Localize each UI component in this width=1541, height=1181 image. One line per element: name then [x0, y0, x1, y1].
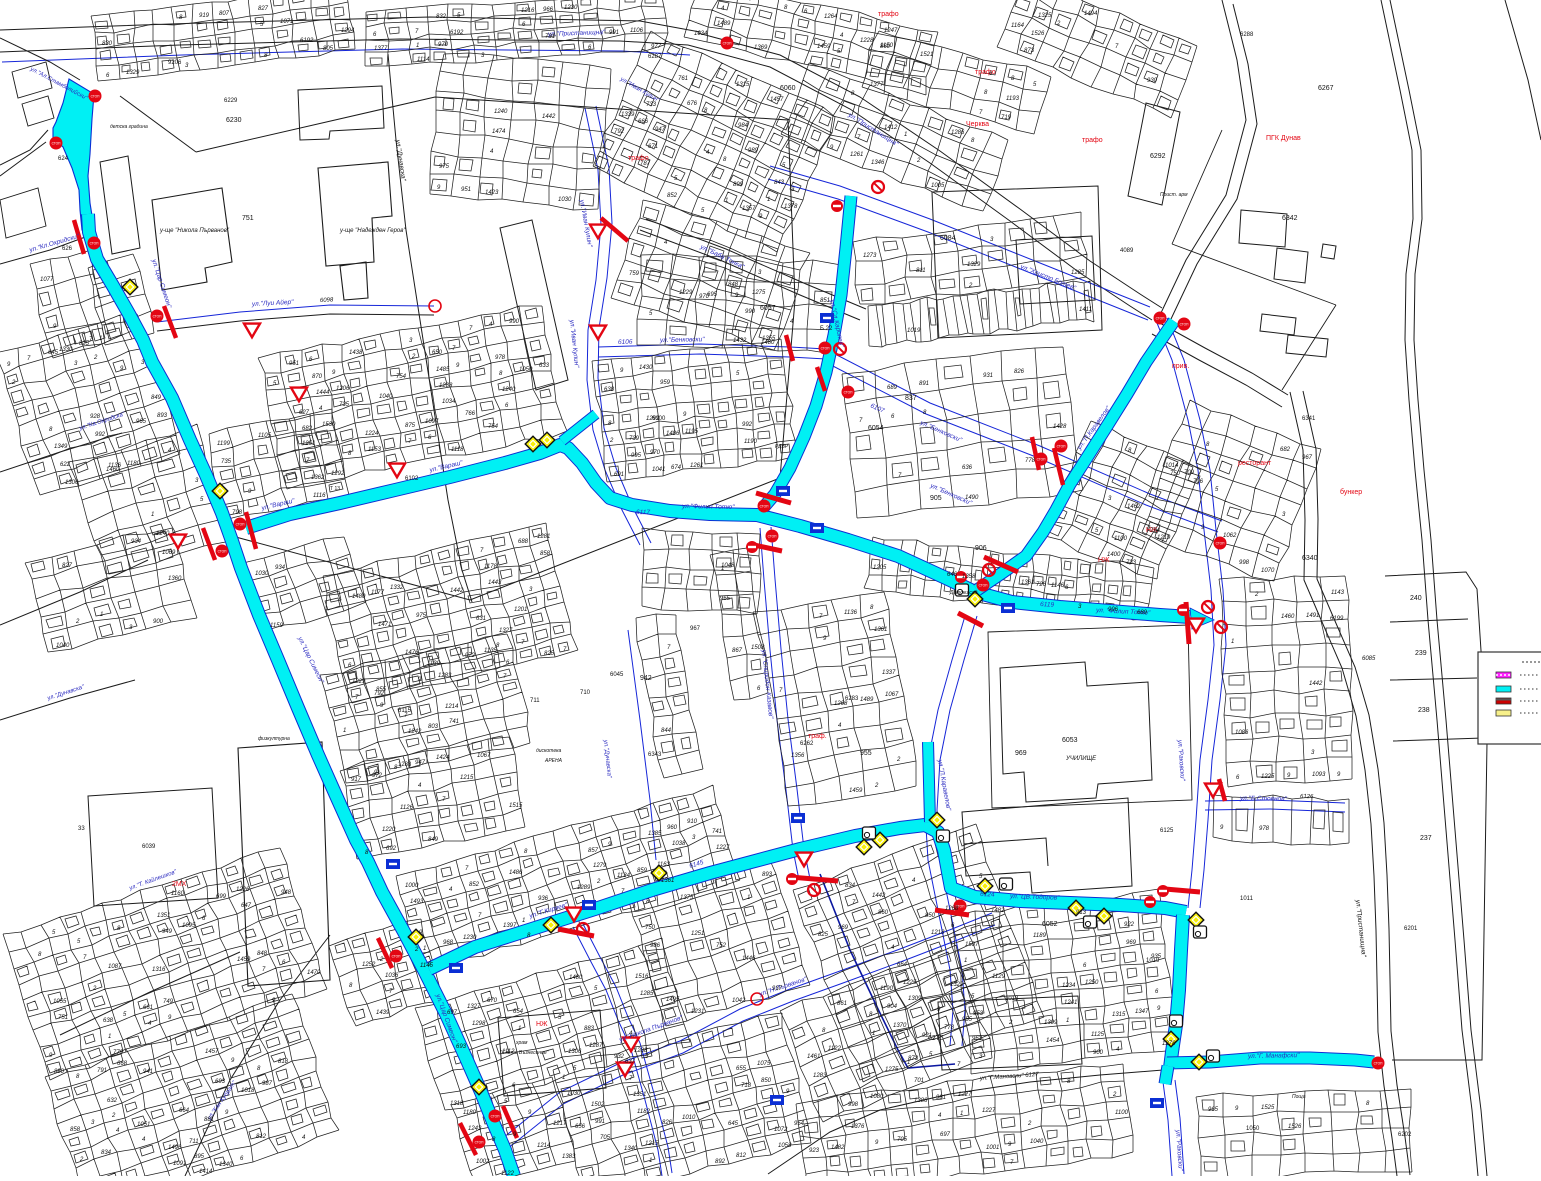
svg-text:693: 693 — [456, 1044, 467, 1050]
svg-text:1190: 1190 — [744, 439, 758, 445]
svg-text:1072: 1072 — [774, 1127, 788, 1133]
svg-text:670: 670 — [487, 998, 498, 1004]
svg-text:1376: 1376 — [851, 1124, 865, 1130]
svg-text:1019: 1019 — [907, 328, 921, 334]
svg-text:1457: 1457 — [205, 1049, 219, 1055]
svg-text:6106: 6106 — [618, 339, 633, 346]
svg-text:931: 931 — [983, 373, 993, 379]
svg-text:692: 692 — [386, 846, 397, 852]
svg-text:1285: 1285 — [1071, 270, 1085, 276]
svg-text:33: 33 — [78, 826, 85, 832]
svg-text:794: 794 — [1150, 528, 1161, 534]
svg-text:1424: 1424 — [436, 755, 450, 761]
svg-text:967: 967 — [1302, 455, 1313, 461]
svg-text:1214: 1214 — [445, 704, 459, 710]
svg-text:1397: 1397 — [503, 923, 517, 929]
svg-text:705: 705 — [897, 1137, 908, 1143]
svg-text:812: 812 — [736, 1153, 747, 1159]
svg-text:2: 2 — [1008, 1020, 1013, 1026]
svg-text:1457: 1457 — [770, 97, 784, 103]
svg-text:955: 955 — [962, 1017, 973, 1023]
svg-text:666: 666 — [638, 119, 649, 125]
svg-text:1250: 1250 — [1085, 980, 1099, 986]
svg-text:1482: 1482 — [831, 1145, 845, 1151]
svg-text:1306: 1306 — [65, 480, 79, 486]
svg-text:1240: 1240 — [502, 387, 516, 393]
svg-text:1496: 1496 — [168, 1145, 182, 1151]
svg-text:2: 2 — [93, 355, 98, 361]
svg-text:645: 645 — [728, 1121, 739, 1127]
svg-text:861: 861 — [837, 1001, 847, 1007]
svg-text:1325: 1325 — [1038, 13, 1052, 19]
svg-text:1067: 1067 — [477, 753, 491, 759]
svg-text:6060: 6060 — [780, 85, 796, 92]
svg-text:844: 844 — [661, 728, 672, 734]
svg-text:6054: 6054 — [868, 425, 884, 432]
svg-text:825: 825 — [544, 651, 555, 657]
svg-text:726: 726 — [1036, 582, 1047, 588]
svg-text:2: 2 — [874, 783, 879, 789]
svg-text:921: 921 — [922, 1033, 932, 1039]
svg-text:1383: 1383 — [562, 1154, 576, 1160]
svg-text:682: 682 — [1280, 447, 1291, 453]
svg-text:992: 992 — [95, 432, 106, 438]
svg-text:741: 741 — [712, 829, 722, 835]
svg-text:1100: 1100 — [1114, 536, 1128, 542]
svg-text:1091: 1091 — [173, 1161, 186, 1167]
svg-text:1234: 1234 — [1062, 983, 1076, 989]
svg-text:1164: 1164 — [1011, 23, 1025, 29]
svg-text:906: 906 — [975, 545, 987, 552]
svg-text:706: 706 — [1193, 479, 1204, 485]
svg-text:1283: 1283 — [813, 1073, 827, 1079]
svg-text:у-ще "Никола Първанов": у-ще "Никола Първанов" — [159, 228, 230, 234]
svg-text:624: 624 — [58, 156, 69, 162]
svg-text:705: 705 — [600, 1135, 611, 1141]
svg-text:699: 699 — [216, 894, 227, 900]
svg-text:1400: 1400 — [1107, 552, 1121, 558]
svg-text:1526: 1526 — [1031, 31, 1045, 37]
svg-text:965: 965 — [136, 419, 147, 425]
svg-text:1327: 1327 — [467, 1004, 481, 1010]
svg-text:1126: 1126 — [400, 805, 414, 811]
svg-text:1442: 1442 — [872, 893, 886, 899]
svg-text:1264: 1264 — [824, 14, 838, 20]
svg-text:1231: 1231 — [691, 1009, 704, 1015]
svg-text:998: 998 — [1239, 560, 1250, 566]
svg-text:1180: 1180 — [463, 1110, 477, 1116]
svg-text:1378: 1378 — [784, 204, 798, 210]
svg-text:2: 2 — [916, 158, 921, 164]
svg-text:240: 240 — [1410, 595, 1422, 602]
svg-text:6125: 6125 — [1160, 828, 1174, 834]
svg-text:2: 2 — [1112, 1092, 1117, 1098]
svg-text:637: 637 — [625, 1059, 636, 1065]
svg-text:1018: 1018 — [241, 1088, 255, 1094]
svg-text:1: 1 — [108, 1034, 111, 1040]
svg-text:1327: 1327 — [499, 628, 513, 634]
svg-text:843: 843 — [774, 180, 785, 186]
svg-text:1229: 1229 — [679, 290, 693, 296]
svg-text:934: 934 — [131, 539, 142, 545]
svg-text:2: 2 — [609, 438, 614, 444]
svg-text:664: 664 — [897, 962, 908, 968]
svg-text:2: 2 — [111, 1113, 116, 1119]
svg-text:1329: 1329 — [967, 262, 981, 268]
svg-text:941: 941 — [143, 1069, 153, 1075]
svg-text:1515: 1515 — [509, 803, 523, 809]
svg-text:919: 919 — [199, 13, 210, 19]
svg-text:СТОП: СТОП — [1037, 458, 1046, 462]
svg-text:656: 656 — [575, 1124, 586, 1130]
svg-text:СТОП: СТОП — [392, 955, 401, 959]
svg-text:1247: 1247 — [884, 28, 898, 34]
svg-text:834: 834 — [845, 883, 856, 889]
svg-text:1010: 1010 — [682, 1115, 696, 1121]
svg-text:858: 858 — [540, 551, 551, 557]
svg-text:6126: 6126 — [1300, 794, 1314, 800]
svg-text:СТОП: СТОП — [723, 42, 732, 46]
svg-text:1014: 1014 — [1165, 463, 1179, 469]
svg-text:664: 664 — [179, 1108, 190, 1114]
svg-text:1048: 1048 — [721, 563, 735, 569]
svg-text:СТОП: СТОП — [475, 1141, 484, 1145]
svg-text:6229: 6229 — [224, 98, 238, 104]
svg-text:881: 881 — [204, 1117, 214, 1123]
svg-text:989: 989 — [748, 148, 759, 154]
svg-text:1199: 1199 — [217, 441, 231, 447]
svg-text:1412: 1412 — [884, 125, 898, 131]
svg-text:1430: 1430 — [639, 365, 653, 371]
svg-text:1100: 1100 — [1115, 1110, 1129, 1116]
svg-text:860: 860 — [880, 44, 891, 50]
svg-text:689: 689 — [1137, 610, 1148, 616]
svg-text:873: 873 — [1024, 48, 1035, 54]
svg-text:1268: 1268 — [834, 701, 848, 707]
svg-text:1086: 1086 — [1235, 730, 1249, 736]
svg-text:1340: 1340 — [219, 1162, 233, 1168]
svg-text:1: 1 — [872, 1031, 875, 1037]
svg-text:739: 739 — [629, 436, 640, 442]
svg-text:622: 622 — [60, 462, 71, 468]
svg-text:645: 645 — [48, 350, 59, 356]
svg-text:972: 972 — [465, 653, 476, 659]
svg-text:1443: 1443 — [488, 580, 502, 586]
svg-text:1385: 1385 — [648, 831, 662, 837]
svg-text:1351: 1351 — [633, 1092, 646, 1098]
svg-text:1377: 1377 — [374, 46, 388, 52]
svg-text:1459: 1459 — [237, 957, 251, 963]
svg-text:1036: 1036 — [385, 973, 399, 979]
svg-text:834: 834 — [101, 1150, 112, 1156]
svg-text:СТОП: СТОП — [236, 523, 245, 527]
svg-text:1438: 1438 — [349, 350, 363, 356]
svg-text:СТОП: СТОП — [768, 535, 777, 539]
svg-text:1525: 1525 — [1261, 1105, 1275, 1111]
svg-text:1278: 1278 — [1162, 1041, 1176, 1047]
svg-text:778: 778 — [944, 1025, 955, 1031]
svg-text:638: 638 — [103, 1018, 114, 1024]
svg-text:719: 719 — [1001, 115, 1012, 121]
svg-text:ул."Г. Манафски": ул."Г. Манафски" — [1247, 1052, 1300, 1060]
svg-text:1080: 1080 — [870, 1094, 884, 1100]
svg-text:1125: 1125 — [1091, 1032, 1105, 1038]
svg-text:947: 947 — [655, 127, 666, 133]
svg-text:1508: 1508 — [751, 645, 765, 651]
svg-text:689: 689 — [887, 385, 898, 391]
svg-text:1050: 1050 — [519, 367, 533, 373]
svg-text:1030: 1030 — [567, 1091, 581, 1097]
svg-text:1013: 1013 — [1005, 996, 1019, 1002]
svg-text:710: 710 — [580, 690, 591, 696]
svg-text:1474: 1474 — [492, 129, 506, 135]
svg-text:1041: 1041 — [652, 467, 665, 473]
svg-text:1459: 1459 — [817, 44, 831, 50]
svg-text:1106: 1106 — [630, 28, 644, 34]
svg-text:947: 947 — [415, 760, 426, 766]
svg-text:1040: 1040 — [1030, 1139, 1044, 1145]
svg-text:1485: 1485 — [436, 367, 450, 373]
svg-text:693: 693 — [215, 1079, 226, 1085]
svg-text:798: 798 — [232, 510, 243, 516]
svg-text:1279: 1279 — [593, 863, 607, 869]
svg-text:969: 969 — [838, 925, 849, 931]
svg-text:1: 1 — [343, 728, 346, 734]
svg-text:1: 1 — [1231, 639, 1234, 645]
svg-text:1217: 1217 — [553, 1121, 567, 1127]
svg-text:2: 2 — [1056, 21, 1061, 27]
svg-text:1136: 1136 — [844, 610, 858, 616]
svg-text:895: 895 — [194, 1154, 205, 1160]
svg-text:1356: 1356 — [791, 753, 805, 759]
svg-text:858: 858 — [70, 1127, 81, 1133]
svg-text:Т 13: Т 13 — [330, 486, 340, 492]
svg-text:803: 803 — [428, 724, 439, 730]
svg-text:1215: 1215 — [460, 775, 474, 781]
svg-text:969: 969 — [1015, 750, 1027, 757]
svg-text:6199: 6199 — [1330, 616, 1344, 622]
svg-text:792: 792 — [614, 129, 625, 135]
svg-text:1288: 1288 — [439, 383, 453, 389]
svg-text:671: 671 — [648, 144, 658, 150]
svg-text:6230: 6230 — [226, 117, 242, 124]
svg-text:892: 892 — [715, 1159, 726, 1165]
svg-text:917: 917 — [351, 777, 362, 783]
svg-text:826: 826 — [1014, 369, 1025, 375]
svg-text:1: 1 — [964, 958, 967, 964]
svg-text:975: 975 — [439, 164, 450, 170]
svg-text:751: 751 — [242, 215, 254, 222]
svg-text:6052: 6052 — [1042, 921, 1058, 928]
svg-text:1051: 1051 — [137, 1122, 150, 1128]
svg-text:1071: 1071 — [280, 19, 293, 25]
svg-text:986: 986 — [650, 943, 661, 949]
svg-text:830: 830 — [102, 41, 113, 47]
svg-text:6201: 6201 — [1404, 926, 1418, 932]
svg-text:6192: 6192 — [300, 38, 314, 44]
svg-text:805: 805 — [323, 46, 334, 52]
svg-text:1005: 1005 — [931, 183, 945, 189]
svg-text:1159: 1159 — [270, 623, 284, 629]
svg-text:1139: 1139 — [427, 661, 441, 667]
svg-text:953: 953 — [973, 1011, 984, 1017]
svg-text:1: 1 — [904, 132, 907, 138]
svg-text:1460: 1460 — [1281, 614, 1295, 620]
svg-text:688: 688 — [518, 539, 529, 545]
svg-text:Поща: Поща — [1292, 1094, 1306, 1100]
svg-text:РДВР: РДВР — [775, 444, 789, 450]
svg-text:1423: 1423 — [485, 190, 499, 196]
svg-text:849: 849 — [151, 395, 162, 401]
svg-text:2: 2 — [11, 380, 16, 386]
svg-text:СТОП: СТОП — [90, 242, 99, 246]
svg-text:709: 709 — [1184, 470, 1195, 476]
svg-text:1294: 1294 — [341, 28, 355, 34]
svg-text:987: 987 — [262, 1081, 273, 1087]
svg-text:1218: 1218 — [931, 930, 945, 936]
svg-text:1461: 1461 — [807, 1054, 820, 1060]
svg-text:1283: 1283 — [438, 673, 452, 679]
svg-text:1495: 1495 — [666, 997, 680, 1003]
svg-text:1206: 1206 — [336, 386, 350, 392]
svg-text:1432: 1432 — [733, 338, 747, 344]
svg-text:физкултурна: физкултурна — [258, 736, 290, 742]
svg-text:1: 1 — [747, 895, 750, 901]
svg-text:2: 2 — [92, 986, 97, 992]
svg-text:936: 936 — [538, 896, 549, 902]
svg-text:779: 779 — [113, 1050, 124, 1056]
svg-text:930: 930 — [1147, 78, 1158, 84]
svg-text:850: 850 — [761, 1078, 772, 1084]
svg-text:2: 2 — [75, 619, 80, 625]
svg-text:1329: 1329 — [126, 70, 140, 76]
svg-text:ул."Филип Тотю": ул."Филип Тотю" — [681, 503, 735, 511]
svg-text:СТОП: СТОП — [979, 584, 988, 588]
svg-text:827: 827 — [258, 6, 269, 12]
svg-text:754: 754 — [488, 424, 499, 430]
svg-text:638: 638 — [604, 387, 615, 393]
svg-text:1442: 1442 — [450, 588, 464, 594]
svg-text:1349: 1349 — [54, 444, 68, 450]
svg-text:1105: 1105 — [258, 433, 272, 439]
svg-text:937: 937 — [772, 986, 783, 992]
svg-text:СТОП: СТОП — [1216, 542, 1225, 546]
svg-text:1205: 1205 — [873, 565, 887, 571]
svg-text:1486: 1486 — [666, 431, 680, 437]
svg-text:1030: 1030 — [255, 571, 269, 577]
svg-text:1227: 1227 — [958, 1092, 972, 1098]
svg-text:1289: 1289 — [577, 885, 591, 891]
svg-text:697: 697 — [940, 1132, 951, 1138]
svg-text:1362: 1362 — [311, 475, 325, 481]
svg-text:1034: 1034 — [694, 31, 708, 37]
svg-text:6292: 6292 — [1150, 153, 1166, 160]
svg-text:1292: 1292 — [331, 471, 345, 477]
svg-text:998: 998 — [848, 1102, 859, 1108]
svg-text:870: 870 — [312, 374, 323, 380]
svg-text:750: 750 — [1170, 471, 1181, 477]
svg-text:1351: 1351 — [157, 913, 170, 919]
svg-text:1: 1 — [416, 43, 419, 49]
svg-text:бункер: бункер — [1340, 488, 1362, 496]
svg-text:965: 965 — [720, 596, 731, 602]
svg-text:Детски сад: Детски сад — [949, 590, 978, 596]
svg-text:733: 733 — [646, 102, 657, 108]
svg-text:759: 759 — [629, 271, 640, 277]
svg-text:631: 631 — [476, 616, 486, 622]
svg-text:968: 968 — [443, 940, 454, 946]
svg-text:1346: 1346 — [871, 160, 885, 166]
svg-text:СТОП: СТОП — [1156, 317, 1165, 321]
svg-text:825: 825 — [818, 932, 829, 938]
svg-text:1241: 1241 — [1064, 1000, 1077, 1006]
svg-text:СТОП: СТОП — [491, 1115, 500, 1119]
svg-text:701: 701 — [914, 1078, 924, 1084]
svg-text:1411: 1411 — [1079, 307, 1092, 313]
svg-text:дискотека: дискотека — [536, 748, 561, 754]
svg-text:1459: 1459 — [849, 788, 863, 794]
svg-text:1146: 1146 — [1051, 583, 1065, 589]
svg-text:1482: 1482 — [991, 908, 1005, 914]
svg-text:967: 967 — [690, 626, 701, 632]
svg-text:1224: 1224 — [365, 431, 379, 437]
svg-text:1163: 1163 — [657, 862, 671, 868]
svg-text:1358: 1358 — [962, 574, 976, 580]
svg-text:1134: 1134 — [617, 873, 631, 879]
svg-text:1001: 1001 — [986, 1145, 999, 1151]
svg-text:1225: 1225 — [1261, 774, 1275, 780]
svg-text:963: 963 — [972, 1036, 983, 1042]
svg-text:6341: 6341 — [1302, 416, 1316, 422]
svg-text:1454: 1454 — [1046, 1038, 1060, 1044]
svg-text:1251: 1251 — [691, 931, 704, 937]
svg-text:875: 875 — [405, 423, 416, 429]
svg-text:1268: 1268 — [945, 906, 959, 912]
svg-text:1340: 1340 — [624, 1146, 638, 1152]
svg-text:859: 859 — [637, 868, 648, 874]
svg-text:1361: 1361 — [874, 627, 887, 633]
svg-text:1042: 1042 — [732, 998, 746, 1004]
svg-text:1230: 1230 — [463, 935, 477, 941]
svg-text:791: 791 — [97, 1068, 107, 1074]
svg-text:661: 661 — [143, 1005, 153, 1011]
svg-text:6102: 6102 — [405, 476, 419, 482]
svg-text:СТОП: СТОП — [760, 505, 769, 509]
svg-text:1318: 1318 — [450, 1101, 464, 1107]
svg-text:749: 749 — [163, 999, 174, 1005]
svg-text:969: 969 — [1126, 940, 1137, 946]
svg-text:735: 735 — [221, 459, 232, 465]
svg-text:1: 1 — [960, 1111, 963, 1117]
svg-text:647: 647 — [241, 903, 252, 909]
svg-text:1114: 1114 — [417, 57, 430, 63]
svg-text:1: 1 — [1066, 1018, 1069, 1024]
svg-text:1493: 1493 — [410, 899, 424, 905]
svg-text:1243: 1243 — [468, 1126, 482, 1132]
svg-text:1226: 1226 — [236, 887, 250, 893]
svg-text:6342: 6342 — [1282, 215, 1298, 222]
svg-text:1228: 1228 — [860, 38, 874, 44]
svg-text:731: 731 — [545, 34, 555, 40]
svg-text:904: 904 — [887, 1004, 898, 1010]
svg-text:852: 852 — [469, 882, 480, 888]
svg-text:1: 1 — [99, 336, 102, 342]
svg-text:траф.: траф. — [808, 733, 827, 740]
svg-text:923: 923 — [809, 1148, 820, 1154]
svg-text:1067: 1067 — [885, 692, 899, 698]
svg-text:1000: 1000 — [405, 883, 419, 889]
svg-text:1002: 1002 — [476, 1159, 490, 1165]
